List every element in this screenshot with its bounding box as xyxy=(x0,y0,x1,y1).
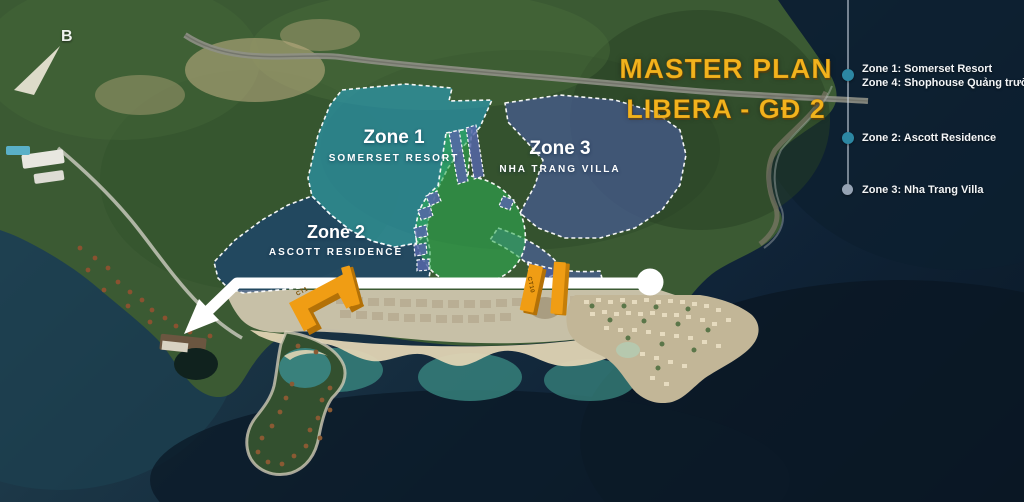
legend-label-zone2: Zone 2: Ascott Residence xyxy=(862,131,996,145)
zone3-label: Zone 3 NHA TRANG VILLA xyxy=(499,138,620,175)
zone3-subtitle: NHA TRANG VILLA xyxy=(499,164,620,175)
legend-dot-zone3 xyxy=(842,184,853,195)
legend-item-zone1-zone4: Zone 1: Somerset Resort Zone 4: Shophous… xyxy=(862,62,1024,90)
legend-label-zone4: Zone 4: Shophouse Quảng trường xyxy=(862,76,1024,90)
zone1-label: Zone 1 SOMERSET RESORT xyxy=(329,127,460,164)
sand-patch xyxy=(95,75,185,115)
zone2-title: Zone 2 xyxy=(269,222,403,243)
zone1-subtitle: SOMERSET RESORT xyxy=(329,153,460,164)
zone3-title: Zone 3 xyxy=(499,138,620,160)
legend-connector-line xyxy=(847,0,849,192)
title-line2: LIBERA - GĐ 2 xyxy=(615,96,837,123)
legend-label-zone3: Zone 3: Nha Trang Villa xyxy=(862,183,983,197)
legend-dot-zone1 xyxy=(842,69,854,81)
sand-patch xyxy=(280,19,360,51)
coast-pool xyxy=(6,146,30,155)
legend-label-zone1: Zone 1: Somerset Resort xyxy=(862,62,1024,76)
zone2-label: Zone 2 ASCOTT RESIDENCE xyxy=(269,222,403,258)
zone2-subtitle: ASCOTT RESIDENCE xyxy=(269,247,403,258)
page-title: MASTER PLAN LIBERA - GĐ 2 xyxy=(615,55,837,123)
legend-item-zone2: Zone 2: Ascott Residence xyxy=(862,131,996,145)
zone1-title: Zone 1 xyxy=(329,127,460,149)
villa-pond xyxy=(616,342,640,358)
legend-item-zone3: Zone 3: Nha Trang Villa xyxy=(862,183,983,197)
north-label: B xyxy=(61,28,73,46)
road-pin xyxy=(637,269,664,296)
title-line1: MASTER PLAN xyxy=(615,55,837,83)
legend-dot-zone2 xyxy=(842,132,854,144)
resort-pool xyxy=(174,348,218,380)
master-plan-image: B MASTER PLAN LIBERA - GĐ 2 Zone 1: Some… xyxy=(0,0,1024,502)
